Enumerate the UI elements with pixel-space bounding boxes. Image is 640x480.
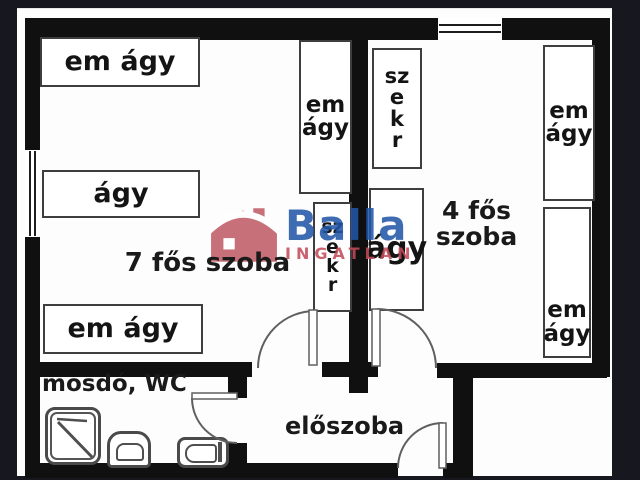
shower-drain-lines [48,410,98,462]
bed-label: em ágy [302,94,349,141]
door-bathroom-icon [192,393,237,443]
wall-left-lower [25,237,40,478]
door-room4-icon [372,309,436,368]
hallway-label: előszoba [285,414,404,439]
floorplan-canvas: em ágy ágy em ágy em ágy sz e k r sz e k… [0,0,640,480]
brand-subtitle: INGATLAN [285,244,416,263]
window-left-icon [25,150,40,237]
bathroom-label: mosdó, WC [42,372,187,396]
window-pane-line [29,151,31,236]
bed-label: em ágy [546,100,593,147]
wall-bath-partition-bottom [228,443,247,468]
door-entry-icon [398,423,446,468]
bed-label: em ágy [68,315,179,343]
door-room7-icon [258,310,317,368]
wall-bottom-corner [443,463,473,478]
toilet-flush-bar [218,442,222,462]
sink-basin [116,443,144,461]
room7-label: 7 fős szoba [120,250,295,277]
bed-label: em ágy [65,48,176,76]
shower-icon [45,407,101,465]
bed-bunk-vertical: em ágy [543,45,595,201]
bed-bunk-vertical: em ágy [543,207,591,358]
bed-bunk-horizontal: em ágy [43,304,203,354]
window-top-icon [438,18,502,40]
room4-label: 4 fős szoba [424,198,529,251]
window-pane-line [439,31,501,33]
sink-icon [107,431,151,468]
bed-horizontal: ágy [42,170,200,218]
window-pane-line [34,151,36,236]
bed-label: ágy [93,180,148,208]
wall-hall-right [453,363,473,477]
wall-bath-partition-top [228,375,247,398]
wardrobe-label: sz e k r [385,66,410,152]
watermark-text: Balla INGATLAN [285,206,416,263]
brand-name: Balla [285,206,416,246]
frame-top-band [0,0,640,8]
bed-bunk-horizontal: em ágy [40,37,200,87]
frame-right-band [612,0,640,480]
bed-bunk-vertical: em ágy [299,40,352,194]
frame-left-band [0,0,17,480]
bed-label: em ágy [544,299,591,346]
wall-between-doors [322,362,378,377]
toilet-bowl [185,444,217,463]
window-pane-line [439,24,501,26]
wardrobe: sz e k r [372,48,422,169]
wall-left-upper [25,18,40,150]
toilet-icon [177,437,229,468]
